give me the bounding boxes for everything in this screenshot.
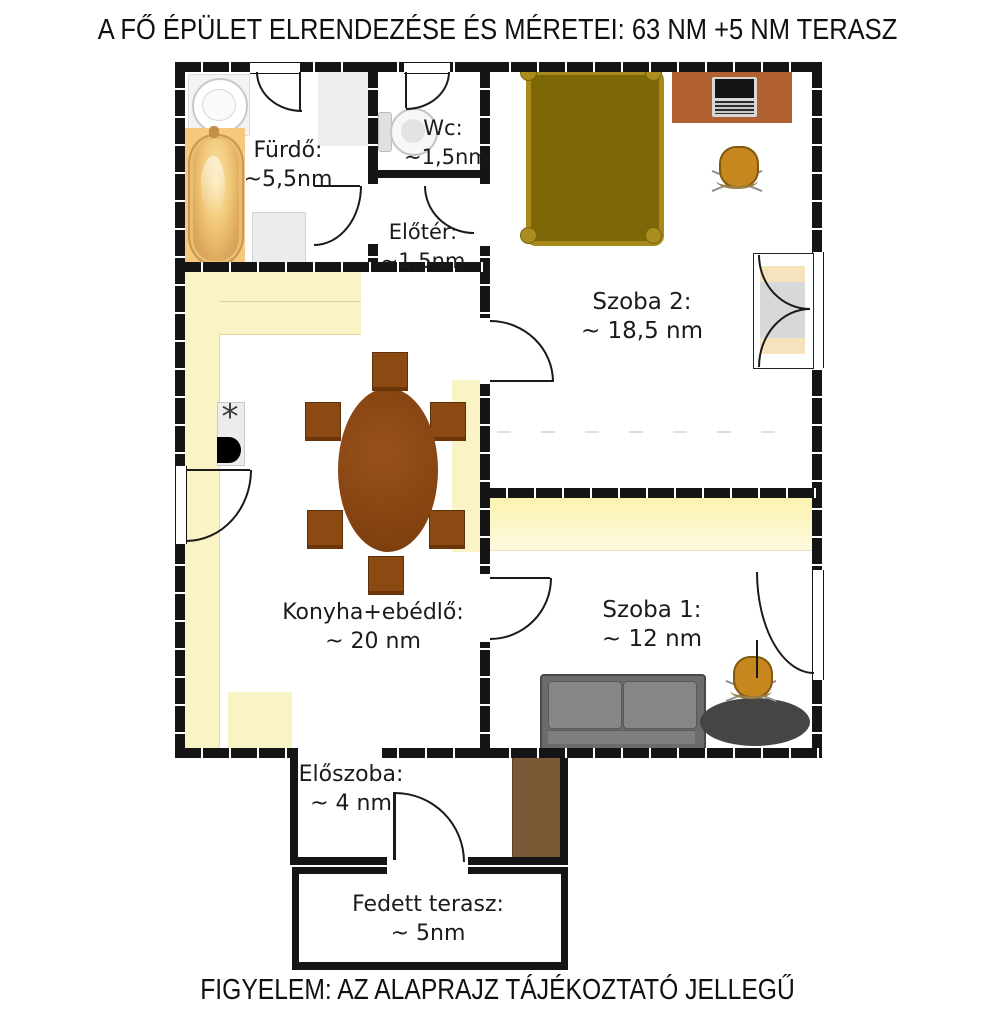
- room-label-szoba1: Szoba 1: ~ 12 nm: [572, 596, 732, 654]
- bathtub-highlight: [201, 156, 225, 214]
- wall-eloszoba-right: [560, 758, 568, 859]
- room-area: ~ 4 nm: [296, 789, 406, 818]
- dining-chair: [430, 402, 466, 441]
- room-name: Wc:: [404, 114, 482, 143]
- dining-chair: [372, 352, 408, 391]
- door-leaf-furdo-top: [299, 72, 301, 110]
- door-arc-szoba2: [490, 320, 554, 382]
- bed: [526, 70, 664, 246]
- szoba1-chair: [728, 654, 774, 704]
- door-arc-furdo-top: [256, 72, 302, 112]
- bathroom-sink-bowl: [202, 89, 236, 121]
- room-label-eloter: Előtér: ~1,5nm: [380, 218, 466, 276]
- chair-back: [716, 172, 758, 189]
- wall-szoba2-szoba1: [480, 488, 822, 498]
- desk-chair: [714, 144, 760, 194]
- dining-chair: [429, 510, 465, 549]
- door-leaf-szoba1-left: [490, 577, 550, 579]
- room-area: ~ 18,5 nm: [562, 317, 722, 346]
- room-label-terasz: Fedett terasz: ~ 5nm: [328, 890, 528, 948]
- washing-machine: [252, 212, 306, 268]
- room-name: Előszoba:: [296, 760, 406, 789]
- door-leaf-szoba1-right: [756, 640, 758, 678]
- laptop-screen: [715, 79, 754, 98]
- room-label-furdo: Fürdő: ~5,5nm: [238, 136, 338, 194]
- rug: [700, 698, 810, 746]
- shower-cabinet: [318, 70, 370, 146]
- kitchen-sink: [217, 437, 241, 463]
- dining-chair: [368, 556, 404, 595]
- room-label-konyha: Konyha+ebédlő: ~ 20 nm: [278, 598, 468, 656]
- plan-title: A FŐ ÉPÜLET ELRENDEZÉSE ÉS MÉRETEI: 63 N…: [60, 14, 936, 47]
- dining-chair: [305, 402, 341, 441]
- wall-terasz-bottom: [292, 962, 568, 970]
- door-arc-wc: [406, 72, 450, 110]
- dining-chair: [307, 510, 343, 549]
- dining-table: [338, 388, 438, 552]
- door-opening-szoba2: [480, 318, 490, 384]
- door-leaf-szoba2: [490, 380, 552, 382]
- kitchen-counter-top: [219, 272, 361, 335]
- bathtub-faucet: [209, 126, 219, 138]
- sofa-cushion: [623, 681, 697, 729]
- door-arc-szoba1-left: [490, 578, 552, 640]
- szoba1-wardrobe-strip: [490, 498, 812, 551]
- door-opening-eloter: [480, 184, 490, 246]
- terasz-door-opening: [387, 867, 468, 874]
- bed-post: [645, 227, 662, 244]
- sofa-cushion: [548, 681, 622, 729]
- door-opening-szoba1-left: [480, 574, 490, 642]
- sofa-seat-front: [548, 730, 695, 744]
- door-opening-furdo-inner: [368, 184, 378, 244]
- stove-burner-icon: *: [214, 398, 246, 430]
- room-label-szoba2: Szoba 2: ~ 18,5 nm: [562, 288, 722, 346]
- chair-back: [730, 682, 772, 699]
- door-leaf-kitchen-left: [186, 469, 250, 471]
- laptop-keyboard: [715, 101, 754, 114]
- wall-left: [175, 62, 185, 758]
- door-leaf-wc: [405, 72, 407, 108]
- szoba2-floor-line: [497, 431, 805, 433]
- door-arc-furdo-inner: [314, 186, 362, 246]
- plan-footer: FIGYELEM: AZ ALAPRAJZ TÁJÉKOZTATÓ JELLEG…: [75, 974, 921, 1007]
- opening-eloszoba-konyha: [298, 748, 382, 758]
- room-name: Szoba 2:: [562, 288, 722, 317]
- kitchen-counter-bottom: [228, 692, 292, 748]
- room-name: Fedett terasz:: [328, 890, 528, 919]
- room-area: ~1,5nm: [380, 247, 466, 276]
- room-area: ~ 12 nm: [572, 625, 732, 654]
- wall-terasz-right: [561, 867, 568, 970]
- hall-wardrobe: [512, 758, 561, 858]
- room-area: ~ 5nm: [328, 919, 528, 948]
- room-name: Szoba 1:: [572, 596, 732, 625]
- door-arc-kitchen-left: [186, 470, 252, 542]
- room-area: ~ 20 nm: [278, 627, 468, 656]
- wall-bottom: [175, 748, 822, 758]
- room-name: Konyha+ebédlő:: [278, 598, 468, 627]
- room-name: Fürdő:: [238, 136, 338, 165]
- kitchen-counter-top-line: [219, 301, 361, 302]
- room-label-wc: Wc: ~1,5nm: [404, 114, 482, 172]
- floor-plan: A FŐ ÉPÜLET ELRENDEZÉSE ÉS MÉRETEI: 63 N…: [0, 0, 995, 1024]
- room-name: Előtér:: [380, 218, 466, 247]
- room-label-eloszoba: Előszoba: ~ 4 nm: [296, 760, 406, 818]
- wall-terasz-left: [292, 867, 299, 970]
- room-area: ~5,5nm: [238, 165, 338, 194]
- room-area: ~1,5nm: [404, 143, 482, 172]
- bed-post: [520, 227, 537, 244]
